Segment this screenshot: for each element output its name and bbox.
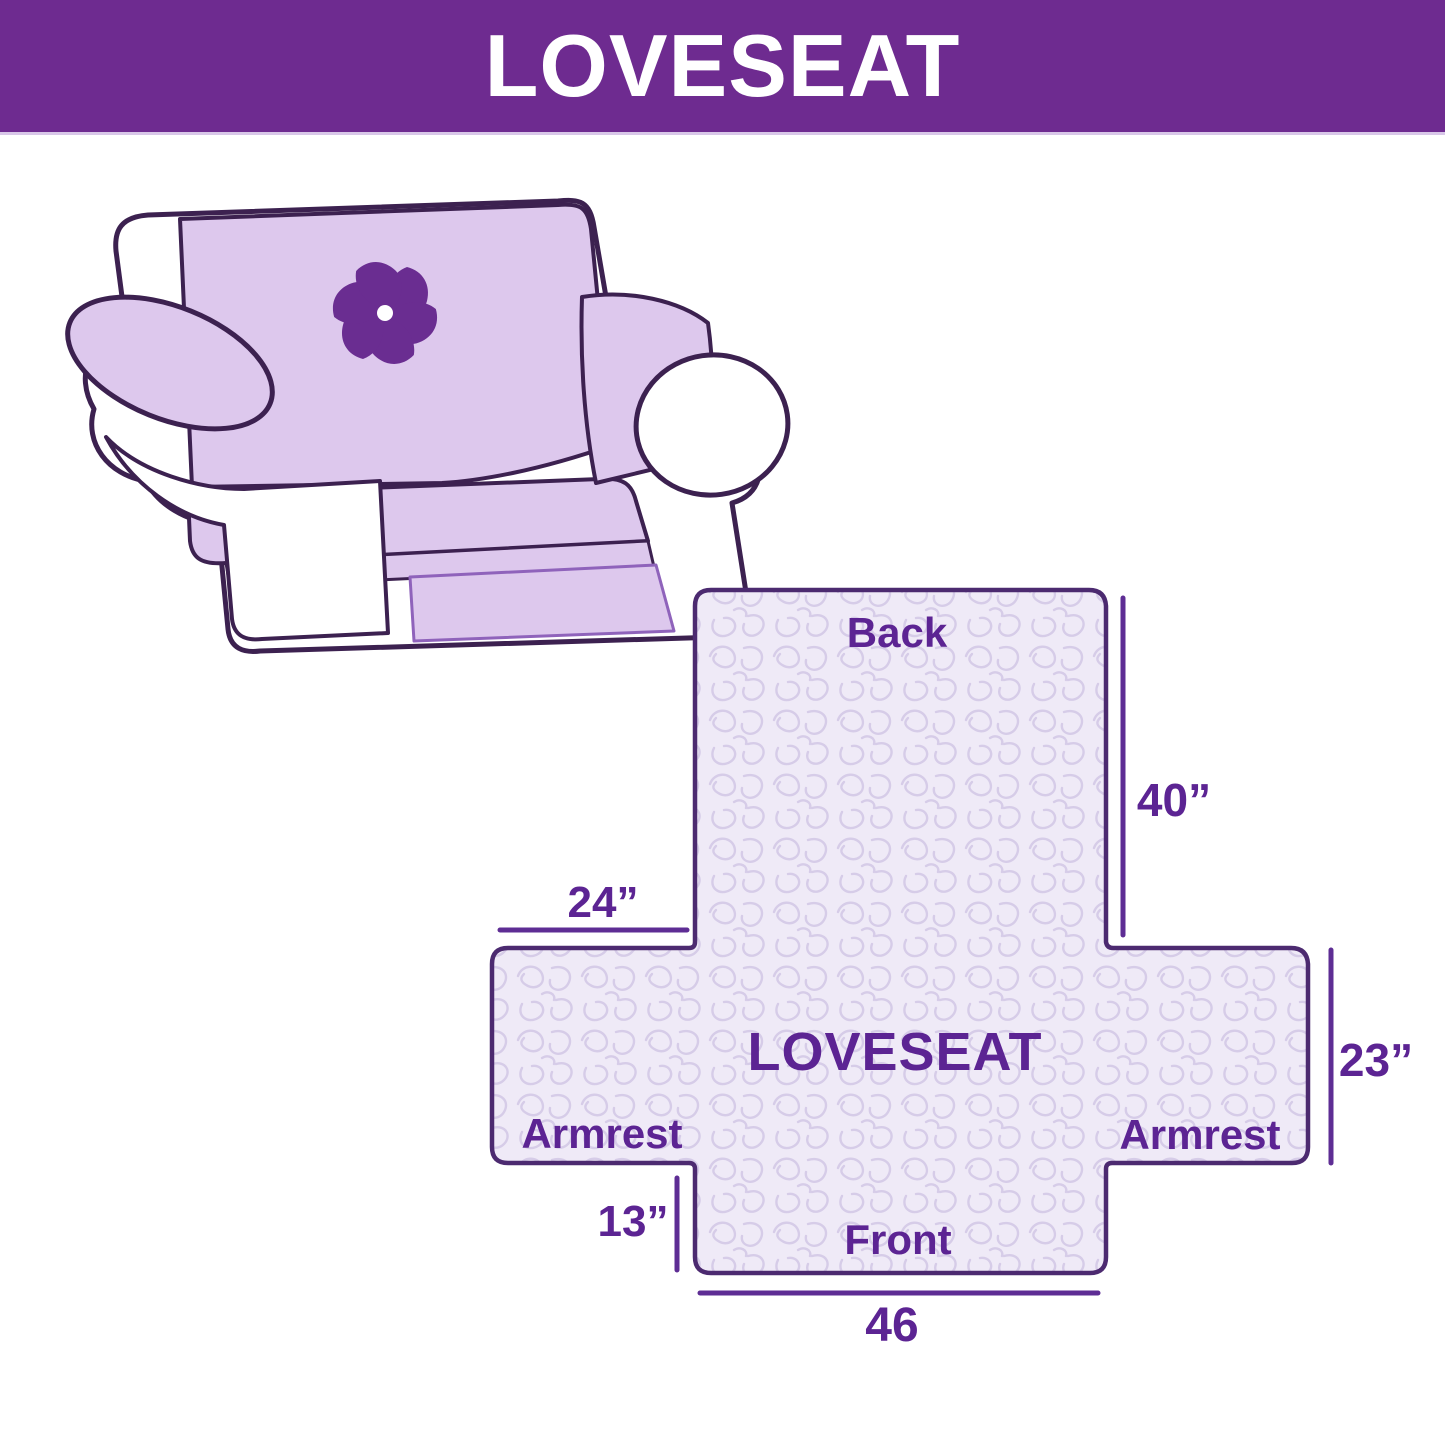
- dim-front-drop-value: 13”: [598, 1200, 669, 1244]
- infographic-canvas: LOVESEAT: [0, 0, 1445, 1445]
- cover-diagram: [0, 0, 1445, 1445]
- dim-armrest-depth-value: 23”: [1339, 1037, 1413, 1083]
- armrest-left-label: Armrest: [521, 1113, 682, 1155]
- dim-armrest-width-value: 24”: [568, 881, 639, 925]
- front-panel-label: Front: [844, 1219, 951, 1261]
- back-panel-label: Back: [847, 612, 947, 654]
- center-loveseat-label: LOVESEAT: [747, 1025, 1042, 1079]
- dim-front-width-value: 46: [865, 1302, 918, 1350]
- armrest-right-label: Armrest: [1119, 1114, 1280, 1156]
- dim-back-height-value: 40”: [1137, 777, 1211, 823]
